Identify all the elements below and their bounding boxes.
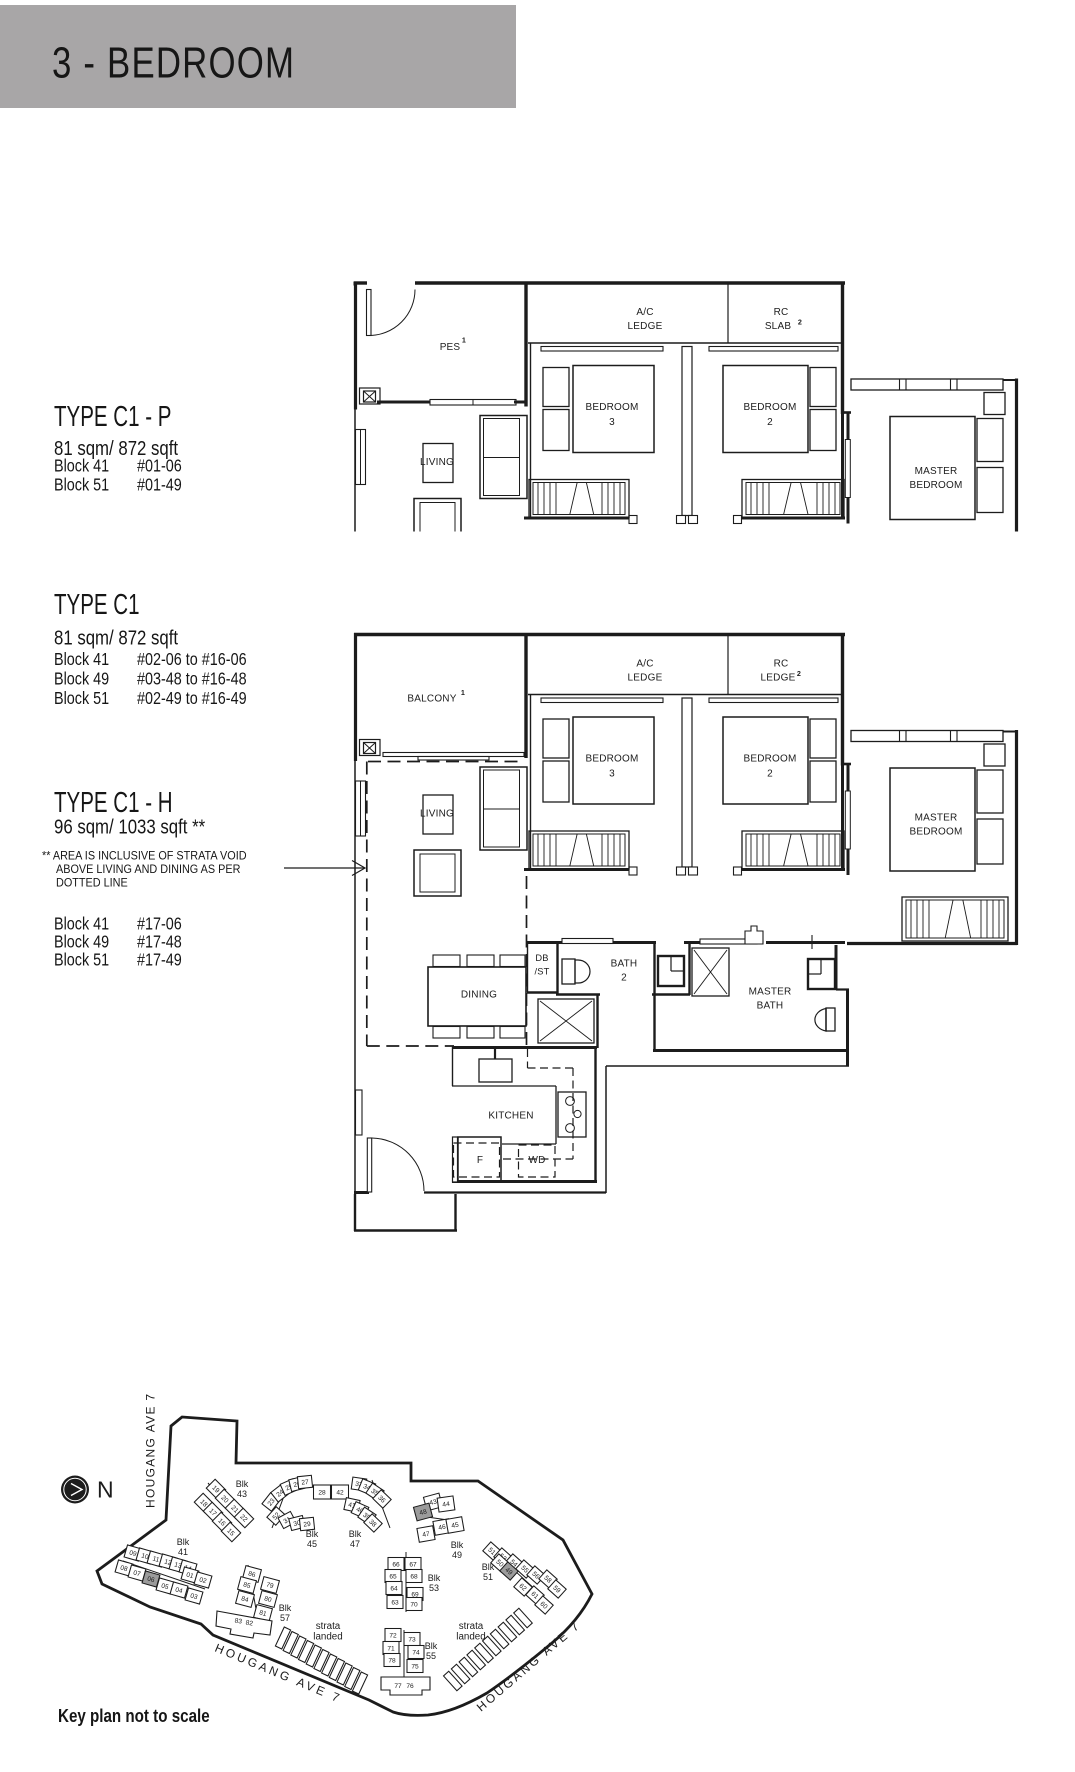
svg-text:63: 63 xyxy=(391,1599,399,1606)
svg-text:KITCHEN: KITCHEN xyxy=(488,1111,533,1122)
svg-text:2: 2 xyxy=(621,973,627,984)
svg-text:MASTER: MASTER xyxy=(749,987,792,998)
svg-text:LIVING: LIVING xyxy=(420,457,454,468)
svg-text:Blk: Blk xyxy=(236,1479,249,1489)
svg-text:#01-06: #01-06 xyxy=(137,456,182,476)
svg-text:Block 49: Block 49 xyxy=(54,669,109,689)
svg-text:Key plan not to scale: Key plan not to scale xyxy=(58,1706,210,1727)
svg-text:73: 73 xyxy=(408,1636,416,1643)
svg-text:Blk: Blk xyxy=(349,1529,362,1539)
svg-text:Block 41: Block 41 xyxy=(54,914,109,934)
svg-text:#03-48 to #16-48: #03-48 to #16-48 xyxy=(137,669,247,689)
svg-text:WD: WD xyxy=(528,1155,545,1166)
svg-text:77: 77 xyxy=(394,1683,402,1690)
svg-text:51: 51 xyxy=(483,1572,493,1582)
svg-text:1: 1 xyxy=(461,688,465,697)
svg-text:RC: RC xyxy=(774,659,789,670)
svg-text:2: 2 xyxy=(767,769,773,780)
svg-text:A/C: A/C xyxy=(636,659,653,670)
svg-text:Blk: Blk xyxy=(306,1529,319,1539)
svg-text:BEDROOM: BEDROOM xyxy=(909,480,962,491)
svg-text:2: 2 xyxy=(798,318,802,327)
svg-text:65: 65 xyxy=(389,1573,397,1580)
svg-text:BEDROOM: BEDROOM xyxy=(743,754,796,765)
svg-text:Block 49: Block 49 xyxy=(54,932,109,952)
svg-text:67: 67 xyxy=(409,1561,417,1568)
svg-text:43: 43 xyxy=(237,1489,247,1499)
svg-text:Block 51: Block 51 xyxy=(54,475,109,495)
svg-text:Blk: Blk xyxy=(425,1641,438,1651)
svg-text:N: N xyxy=(97,1477,114,1503)
svg-text:#17-49: #17-49 xyxy=(137,950,182,970)
svg-text:HOUGANG AVE 7: HOUGANG AVE 7 xyxy=(144,1393,158,1508)
svg-text:TYPE C1 - P: TYPE C1 - P xyxy=(54,402,171,433)
svg-text:MASTER: MASTER xyxy=(915,466,958,477)
svg-text:45: 45 xyxy=(307,1539,317,1549)
svg-text:76: 76 xyxy=(406,1683,414,1690)
svg-text:LEDGE: LEDGE xyxy=(628,321,663,332)
svg-text:3 - BEDROOM: 3 - BEDROOM xyxy=(52,39,295,88)
svg-text:75: 75 xyxy=(411,1663,419,1670)
svg-text:Block 51: Block 51 xyxy=(54,950,109,970)
svg-text:** AREA IS INCLUSIVE OF STRATA: ** AREA IS INCLUSIVE OF STRATA VOID xyxy=(42,850,247,862)
svg-text:68: 68 xyxy=(410,1573,418,1580)
svg-text:57: 57 xyxy=(280,1613,290,1623)
svg-text:#01-49: #01-49 xyxy=(137,475,182,495)
svg-text:BEDROOM: BEDROOM xyxy=(585,754,638,765)
svg-text:53: 53 xyxy=(429,1583,439,1593)
svg-text:44: 44 xyxy=(442,1501,451,1509)
svg-text:BALCONY: BALCONY xyxy=(407,694,456,705)
svg-text:#02-49 to #16-49: #02-49 to #16-49 xyxy=(137,689,247,709)
svg-text:strata: strata xyxy=(316,1621,341,1632)
svg-text:ABOVE LIVING AND DINING AS PER: ABOVE LIVING AND DINING AS PER xyxy=(56,864,240,876)
svg-text:28: 28 xyxy=(318,1489,326,1496)
svg-text:Block 51: Block 51 xyxy=(54,689,109,709)
svg-text:landed: landed xyxy=(456,1632,485,1643)
svg-text:DB: DB xyxy=(535,602,548,612)
svg-text:TYPE C1: TYPE C1 xyxy=(54,590,140,621)
svg-text:DINING: DINING xyxy=(461,990,497,1001)
svg-text:#17-48: #17-48 xyxy=(137,932,182,952)
svg-text:29: 29 xyxy=(303,1521,311,1529)
svg-text:47: 47 xyxy=(350,1539,360,1549)
svg-text:Block 41: Block 41 xyxy=(54,456,109,476)
svg-text:strata: strata xyxy=(459,1621,484,1632)
svg-text:66: 66 xyxy=(392,1561,400,1568)
svg-text:BATH: BATH xyxy=(611,607,638,618)
svg-text:DOTTED LINE: DOTTED LINE xyxy=(56,877,128,889)
svg-text:DB: DB xyxy=(535,953,548,963)
svg-text:55: 55 xyxy=(426,1651,436,1661)
svg-text:BATH: BATH xyxy=(611,959,638,970)
svg-text:1: 1 xyxy=(462,336,466,345)
svg-text:HOUGANG AVE 7: HOUGANG AVE 7 xyxy=(474,1618,584,1715)
svg-text:RC: RC xyxy=(774,307,789,318)
svg-text:LEDGE: LEDGE xyxy=(761,673,796,684)
svg-text:SLAB: SLAB xyxy=(765,321,792,332)
svg-text:LEDGE: LEDGE xyxy=(628,673,663,684)
svg-text:41: 41 xyxy=(178,1547,188,1557)
svg-text:/ST: /ST xyxy=(534,967,549,977)
svg-text:BEDROOM: BEDROOM xyxy=(909,827,962,838)
svg-text:74: 74 xyxy=(412,1649,420,1656)
svg-text:BATH: BATH xyxy=(757,1001,784,1012)
svg-text:DINING: DINING xyxy=(461,638,497,649)
svg-text:MASTER: MASTER xyxy=(749,635,792,646)
svg-text:BEDROOM: BEDROOM xyxy=(743,402,796,413)
svg-text:96 sqm/ 1033 sqft **: 96 sqm/ 1033 sqft ** xyxy=(54,815,205,838)
svg-text:MASTER: MASTER xyxy=(915,813,958,824)
svg-text:27: 27 xyxy=(301,1479,309,1487)
svg-text:BEDROOM: BEDROOM xyxy=(585,402,638,413)
svg-text:Blk: Blk xyxy=(279,1603,292,1613)
svg-text:Blk: Blk xyxy=(177,1537,190,1547)
svg-text:64: 64 xyxy=(390,1585,398,1592)
svg-text:#17-06: #17-06 xyxy=(137,914,182,934)
svg-text:F: F xyxy=(477,1155,483,1166)
svg-text:A/C: A/C xyxy=(636,307,653,318)
svg-text:81 sqm/ 872 sqft: 81 sqm/ 872 sqft xyxy=(54,626,178,649)
svg-text:72: 72 xyxy=(389,1632,397,1639)
svg-text:42: 42 xyxy=(336,1489,344,1496)
svg-text:LIVING: LIVING xyxy=(420,809,454,820)
svg-text:3: 3 xyxy=(609,417,615,428)
svg-text:2: 2 xyxy=(767,417,773,428)
svg-text:PES: PES xyxy=(440,342,461,353)
svg-text:78: 78 xyxy=(388,1657,396,1664)
svg-text:#02-06 to #16-06: #02-06 to #16-06 xyxy=(137,650,247,670)
svg-text:71: 71 xyxy=(387,1645,395,1652)
svg-text:Blk: Blk xyxy=(428,1573,441,1583)
svg-text:2: 2 xyxy=(621,621,627,632)
svg-text:49: 49 xyxy=(452,1550,462,1560)
svg-text:2: 2 xyxy=(797,669,801,678)
svg-text:Blk: Blk xyxy=(451,1540,464,1550)
svg-text:landed: landed xyxy=(313,1632,342,1643)
svg-text:70: 70 xyxy=(410,1601,418,1608)
svg-text:3: 3 xyxy=(609,769,615,780)
svg-text:Block 41: Block 41 xyxy=(54,650,109,670)
svg-text:/ST: /ST xyxy=(534,615,549,625)
